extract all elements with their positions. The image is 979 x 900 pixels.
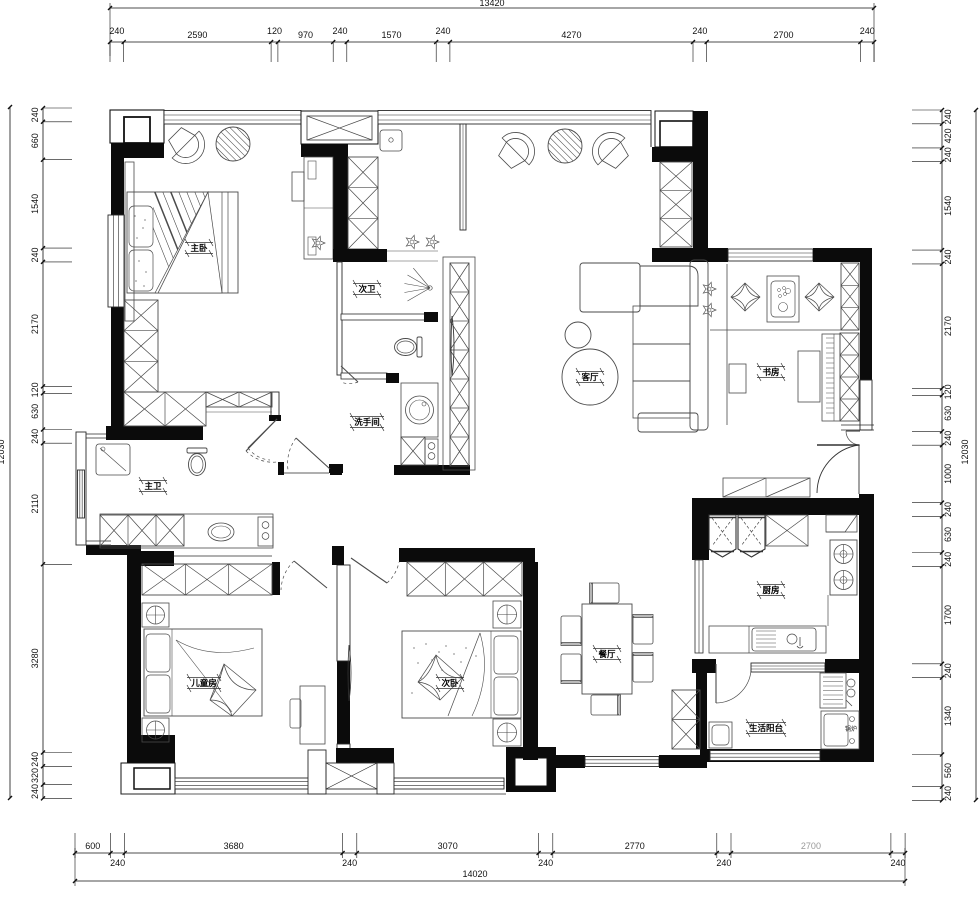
svg-text:次卫: 次卫 xyxy=(358,284,376,294)
svg-text:儿童房: 儿童房 xyxy=(190,678,217,688)
svg-text:320: 320 xyxy=(30,768,40,783)
svg-text:餐厅: 餐厅 xyxy=(597,649,616,659)
svg-text:主卧: 主卧 xyxy=(190,243,208,253)
svg-text:240: 240 xyxy=(30,752,40,767)
svg-text:1700: 1700 xyxy=(943,605,953,625)
svg-text:2590: 2590 xyxy=(187,30,207,40)
svg-text:2170: 2170 xyxy=(943,316,953,336)
svg-text:主卫: 主卫 xyxy=(144,481,162,491)
svg-text:书房: 书房 xyxy=(762,367,779,377)
svg-text:锅炉: 锅炉 xyxy=(845,725,857,733)
svg-text:630: 630 xyxy=(30,404,40,419)
svg-text:240: 240 xyxy=(943,249,953,264)
svg-text:240: 240 xyxy=(30,429,40,444)
svg-text:240: 240 xyxy=(890,858,905,868)
svg-text:1570: 1570 xyxy=(381,30,401,40)
svg-text:240: 240 xyxy=(332,26,347,36)
svg-text:240: 240 xyxy=(109,26,124,36)
svg-text:120: 120 xyxy=(943,384,953,399)
svg-text:2110: 2110 xyxy=(30,494,40,513)
svg-text:240: 240 xyxy=(692,26,707,36)
svg-text:120: 120 xyxy=(30,382,40,397)
svg-text:600: 600 xyxy=(85,841,100,851)
svg-text:240: 240 xyxy=(110,858,125,868)
svg-text:240: 240 xyxy=(436,26,451,36)
svg-text:240: 240 xyxy=(716,858,731,868)
svg-text:420: 420 xyxy=(943,128,953,143)
svg-text:4270: 4270 xyxy=(561,30,581,40)
svg-text:次卧: 次卧 xyxy=(441,678,459,688)
svg-text:240: 240 xyxy=(538,858,553,868)
svg-text:生活阳台: 生活阳台 xyxy=(749,723,784,733)
svg-text:240: 240 xyxy=(943,502,953,517)
svg-text:240: 240 xyxy=(943,109,953,124)
svg-text:1540: 1540 xyxy=(943,196,953,216)
svg-text:12030: 12030 xyxy=(0,439,6,464)
svg-text:洗手间: 洗手间 xyxy=(354,417,380,427)
svg-text:客厅: 客厅 xyxy=(580,372,599,382)
svg-text:1340: 1340 xyxy=(943,706,953,726)
svg-text:2770: 2770 xyxy=(625,841,645,851)
svg-text:630: 630 xyxy=(943,406,953,421)
svg-text:3070: 3070 xyxy=(438,841,458,851)
svg-text:2170: 2170 xyxy=(30,314,40,334)
svg-text:240: 240 xyxy=(30,107,40,122)
svg-text:2700: 2700 xyxy=(774,30,794,40)
svg-text:240: 240 xyxy=(943,786,953,801)
svg-text:240: 240 xyxy=(943,552,953,567)
svg-text:240: 240 xyxy=(943,147,953,162)
svg-text:240: 240 xyxy=(30,247,40,262)
svg-text:13420: 13420 xyxy=(479,0,504,8)
svg-text:12030: 12030 xyxy=(960,439,970,464)
svg-text:14020: 14020 xyxy=(462,869,487,879)
svg-text:240: 240 xyxy=(943,431,953,446)
svg-text:240: 240 xyxy=(943,663,953,678)
svg-text:厨房: 厨房 xyxy=(762,585,779,595)
svg-text:240: 240 xyxy=(30,784,40,799)
svg-text:120: 120 xyxy=(267,26,282,36)
svg-text:240: 240 xyxy=(342,858,357,868)
svg-text:660: 660 xyxy=(30,133,40,148)
svg-text:1000: 1000 xyxy=(943,464,953,484)
svg-text:240: 240 xyxy=(860,26,875,36)
svg-text:3280: 3280 xyxy=(30,648,40,668)
svg-text:3680: 3680 xyxy=(224,841,244,851)
svg-text:970: 970 xyxy=(298,30,313,40)
svg-text:560: 560 xyxy=(943,763,953,778)
svg-text:2700: 2700 xyxy=(801,841,821,851)
svg-text:630: 630 xyxy=(943,527,953,542)
svg-text:1540: 1540 xyxy=(30,194,40,214)
